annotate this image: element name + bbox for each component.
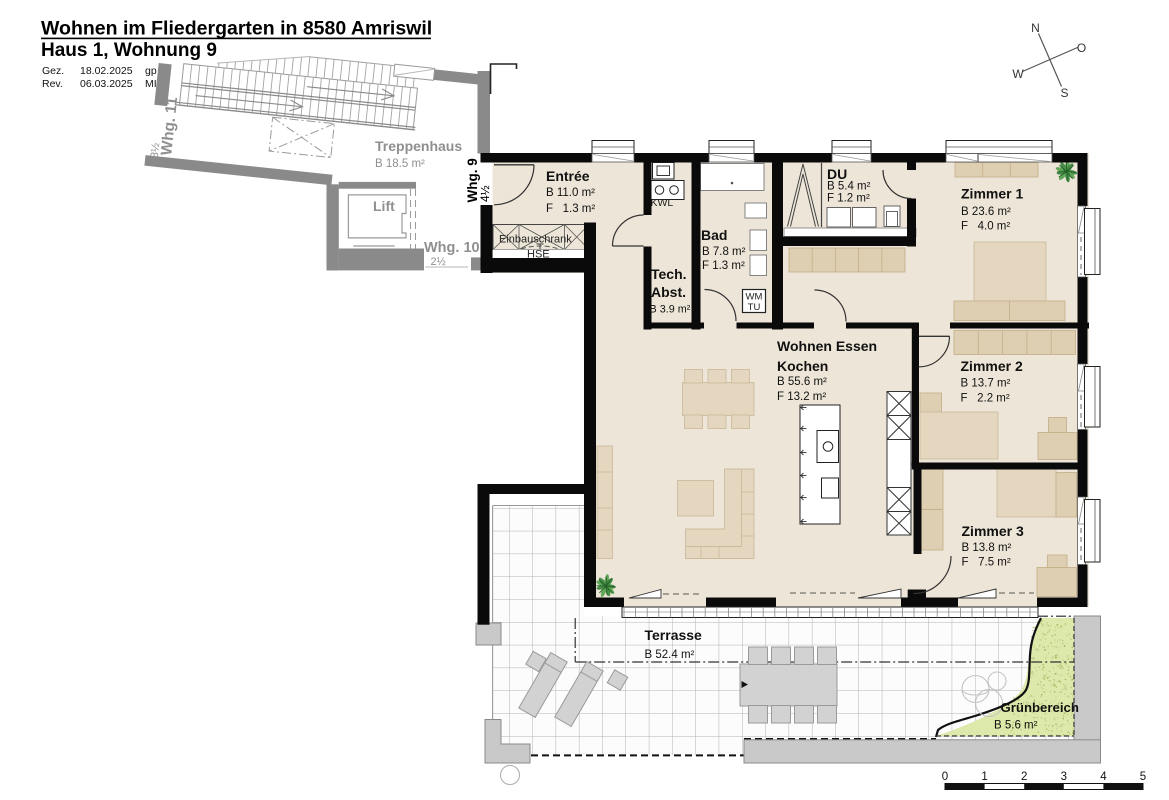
svg-text:Zimmer 2: Zimmer 2: [961, 358, 1023, 374]
svg-text:MI: MI: [145, 78, 157, 90]
svg-text:18.02.2025: 18.02.2025: [80, 65, 133, 77]
svg-text:B 7.8 m²: B 7.8 m²: [702, 246, 746, 258]
svg-text:Zimmer 3: Zimmer 3: [962, 523, 1024, 539]
svg-text:Zimmer 1: Zimmer 1: [961, 186, 1023, 202]
svg-text:Tech.: Tech.: [651, 266, 687, 282]
svg-text:KWL: KWL: [651, 197, 674, 209]
svg-text:Wohnen im Fliedergarten in 858: Wohnen im Fliedergarten in 8580 Amriswil: [41, 18, 432, 40]
svg-text:B 13.7 m²: B 13.7 m²: [961, 378, 1011, 390]
svg-text:Abst.: Abst.: [651, 284, 686, 300]
svg-text:0: 0: [942, 771, 948, 783]
svg-text:TU: TU: [748, 302, 761, 313]
svg-text:W: W: [1012, 67, 1024, 81]
svg-text:O: O: [1077, 41, 1086, 55]
svg-text:Haus 1, Wohnung 9: Haus 1, Wohnung 9: [41, 40, 217, 61]
svg-text:Einbauschrank: Einbauschrank: [499, 234, 572, 246]
svg-text:B 5.4 m²: B 5.4 m²: [827, 181, 871, 193]
svg-text:06.03.2025: 06.03.2025: [80, 78, 133, 90]
svg-text:F 13.2 m²: F 13.2 m²: [777, 391, 826, 403]
svg-text:Rev.: Rev.: [42, 78, 63, 90]
svg-text:B 23.6 m²: B 23.6 m²: [961, 206, 1011, 218]
svg-text:3½: 3½: [149, 142, 163, 158]
svg-text:Treppenhaus: Treppenhaus: [375, 138, 462, 154]
svg-text:F 1.2 m²: F 1.2 m²: [827, 193, 870, 205]
svg-text:B 18.5 m²: B 18.5 m²: [375, 158, 425, 170]
svg-text:4½: 4½: [478, 185, 492, 202]
svg-text:F 7.5 m²: F 7.5 m²: [962, 557, 1011, 569]
svg-text:2: 2: [1021, 771, 1027, 783]
svg-text:F 1.3 m²: F 1.3 m²: [702, 260, 745, 272]
svg-text:B 52.4 m²: B 52.4 m²: [645, 649, 695, 661]
svg-text:3: 3: [1061, 771, 1067, 783]
svg-text:Wohnen Essen: Wohnen Essen: [777, 338, 877, 354]
svg-text:WM: WM: [746, 292, 763, 303]
svg-text:F 4.0 m²: F 4.0 m²: [961, 221, 1010, 233]
svg-text:gp: gp: [145, 65, 157, 77]
svg-text:1: 1: [981, 771, 987, 783]
svg-text:Terrasse: Terrasse: [645, 627, 703, 643]
svg-text:Lift: Lift: [373, 198, 395, 214]
svg-text:Entrée: Entrée: [546, 168, 590, 184]
svg-text:Whg. 10: Whg. 10: [424, 240, 480, 256]
svg-text:N: N: [1031, 21, 1040, 35]
svg-text:B 5.6 m²: B 5.6 m²: [994, 720, 1038, 732]
svg-text:B 55.6 m²: B 55.6 m²: [777, 376, 827, 388]
svg-text:2½: 2½: [431, 256, 446, 268]
svg-text:Kochen: Kochen: [777, 358, 828, 374]
svg-text:4: 4: [1100, 771, 1107, 783]
svg-text:S: S: [1060, 86, 1068, 100]
svg-text:B 11.0 m²: B 11.0 m²: [546, 187, 595, 199]
svg-text:5: 5: [1140, 771, 1146, 783]
svg-text:B 3.9 m²: B 3.9 m²: [650, 304, 691, 316]
svg-text:F 1.3 m²: F 1.3 m²: [546, 203, 595, 215]
svg-text:Bad: Bad: [701, 227, 727, 243]
svg-text:Gez.: Gez.: [42, 65, 64, 77]
svg-text:B 13.8 m²: B 13.8 m²: [962, 542, 1012, 554]
svg-text:F 2.2 m²: F 2.2 m²: [961, 393, 1010, 405]
svg-text:Grünbereich: Grünbereich: [1001, 700, 1079, 715]
